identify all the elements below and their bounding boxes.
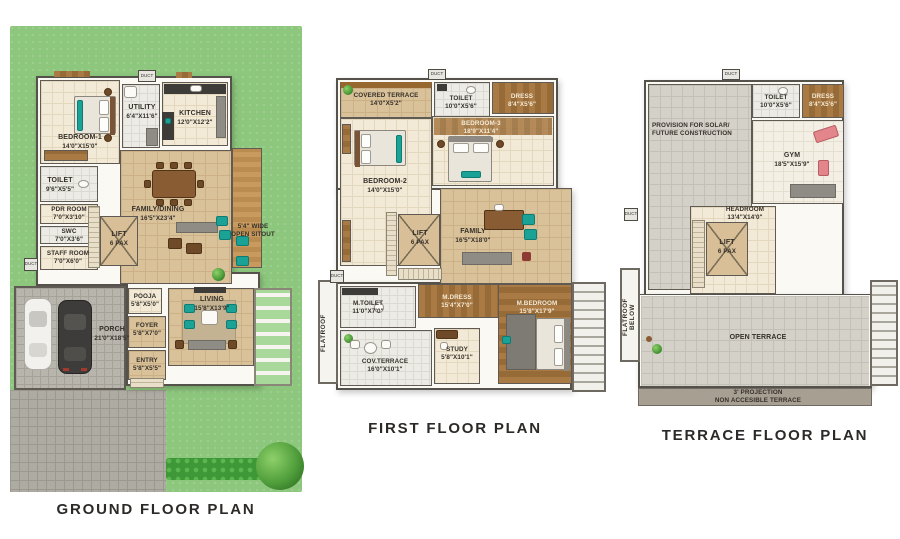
pergola-trellis xyxy=(254,288,292,386)
accent-chair xyxy=(226,320,237,329)
vanity-icon xyxy=(342,288,378,295)
toilet-wc-icon xyxy=(466,86,476,94)
bed-headboard xyxy=(449,137,493,142)
driveway xyxy=(10,390,166,492)
open-sitout-deck xyxy=(232,148,262,268)
accent-chair xyxy=(524,229,537,240)
chair-white xyxy=(494,204,504,211)
balcony-first xyxy=(572,282,606,392)
accent-chair xyxy=(216,216,228,226)
washer-icon xyxy=(124,86,137,98)
dining-chair xyxy=(170,162,178,169)
vanity-icon xyxy=(437,84,447,91)
label-toilet-first: TOILET10'0"X5'6" xyxy=(438,95,484,110)
terrace-chair xyxy=(381,340,391,349)
label-kitchen: KITCHEN12'0"X12'2" xyxy=(170,110,220,127)
pillow-icon xyxy=(361,134,371,148)
plant-icon xyxy=(212,268,225,281)
label-gym: GYM18'5"X15'9" xyxy=(764,152,820,169)
dining-chair xyxy=(170,199,178,206)
study-desk xyxy=(436,330,458,339)
coffee-table xyxy=(186,243,202,254)
label-pooja: POOJA5'8"X5'0" xyxy=(126,293,164,308)
bed-runner xyxy=(461,171,481,178)
bed-headboard xyxy=(355,131,360,167)
dining-chair xyxy=(184,162,192,169)
sofa-icon xyxy=(176,222,218,233)
duct-box: DUCT xyxy=(722,69,740,80)
label-staff: STAFF ROOM7'0"X6'0" xyxy=(40,250,96,265)
duct-box: DUCT xyxy=(138,70,156,82)
label-toilet-terrace: TOILET10'0"X5'6" xyxy=(754,94,798,109)
wardrobe-icon xyxy=(44,150,88,161)
car-rear-window xyxy=(64,347,86,361)
door-mat xyxy=(176,72,192,78)
label-headroom: HEADROOM13'4"X14'0" xyxy=(716,206,774,221)
duct-box: DUCT xyxy=(330,270,344,283)
coffee-table xyxy=(168,238,182,249)
ottoman-red xyxy=(522,252,531,261)
dining-chair xyxy=(197,180,204,188)
tree-icon xyxy=(256,442,304,490)
entry-steps xyxy=(130,378,164,388)
accent-stool xyxy=(502,336,511,344)
bed-icon xyxy=(74,96,116,134)
label-pdr: PDR ROOM7'0"X3'10" xyxy=(42,206,96,221)
side-table-icon xyxy=(437,140,445,148)
sofa-icon xyxy=(188,340,226,350)
terrace-table xyxy=(364,342,377,354)
label-flatroof-below: FLATROOF BELOW xyxy=(622,288,638,346)
label-porch: PORCH21'0"X18'5" xyxy=(90,326,134,343)
bed-icon xyxy=(536,318,570,370)
sink-icon xyxy=(190,85,202,92)
pillow-icon xyxy=(99,117,109,132)
label-bedroom3: BEDROOM-318'9"X11'4" xyxy=(450,120,512,135)
label-open-sitout: 5'4" WIDEOPEN SITOUT xyxy=(228,223,278,238)
car-rear-window xyxy=(29,343,47,357)
label-entry: ENTRY5'8"X5'5" xyxy=(130,357,164,372)
label-projection: 3' PROJECTIONNON ACCESIBLE TERRACE xyxy=(688,389,828,405)
dining-chair xyxy=(156,162,164,169)
label-open-terrace: OPEN TERRACE xyxy=(716,334,800,343)
utility-counter xyxy=(146,128,158,146)
media-unit xyxy=(462,252,512,265)
door-mat xyxy=(54,71,90,77)
toilet-wc-icon xyxy=(78,180,89,188)
side-table-icon xyxy=(104,88,112,96)
label-familydining: FAMILY/DINING16'5"X23'4" xyxy=(126,206,190,223)
pillow-icon xyxy=(473,143,489,153)
bed-headboard xyxy=(110,97,115,135)
pot-icon xyxy=(646,336,652,342)
label-dress-terrace: DRESS8'4"X5'6" xyxy=(802,93,844,108)
car-dark-icon xyxy=(58,300,92,374)
dining-table-icon xyxy=(152,170,196,198)
dining-chair xyxy=(184,199,192,206)
tail-light xyxy=(81,368,87,371)
accent-chair xyxy=(184,320,195,329)
accent-chair xyxy=(522,214,535,225)
duct-label: DUCT xyxy=(431,72,444,77)
gym-bench-icon xyxy=(790,184,836,198)
pillow-icon xyxy=(554,325,563,343)
stairs-first xyxy=(386,212,397,276)
label-mdress: M.DRESS15'4"X7'0" xyxy=(428,294,486,309)
label-bedroom1: BEDROOM-114'0"X15'0" xyxy=(48,134,112,151)
label-covered-terrace: COVERED TERRACE14'0"X5'2" xyxy=(346,92,426,107)
label-solar-provision: PROVISION FOR SOLAR/FUTURE CONSTRUCTION xyxy=(648,122,756,137)
label-covterrace: COV.TERRACE16'0"X10'1" xyxy=(352,358,418,373)
pillow-icon xyxy=(99,100,109,115)
bed-runner xyxy=(77,100,83,131)
ground-floor-title: GROUND FLOOR PLAN xyxy=(10,501,302,518)
tv-console xyxy=(194,287,226,293)
terrace-floor-title: TERRACE FLOOR PLAN xyxy=(640,427,890,444)
duct-box: DUCT xyxy=(428,69,446,80)
duct-box: DUCT xyxy=(624,208,638,221)
stairs-terrace xyxy=(692,220,705,288)
label-living: LIVING15'8"X13'9" xyxy=(190,296,234,313)
label-flatroof: FLATROOF xyxy=(320,308,336,358)
label-mtoilet: M.TOILET11'0"X7'0" xyxy=(344,300,392,315)
label-bedroom2: BEDROOM-214'0"X15'0" xyxy=(352,178,418,195)
sitout-chair xyxy=(236,256,249,266)
family-table xyxy=(484,210,524,230)
label-utility: UTILITY6'4"X11'6" xyxy=(123,104,161,121)
label-foyer: FOYER5'8"X7'0" xyxy=(130,322,164,337)
label-mbedroom: M.BEDROOM15'8"X17'9" xyxy=(502,300,572,315)
duct-label: DUCT xyxy=(625,212,638,217)
side-table-icon xyxy=(496,140,504,148)
bed-runner xyxy=(396,135,402,163)
terrace-chair xyxy=(350,340,360,349)
bed-headboard xyxy=(564,319,569,371)
side-table-icon xyxy=(175,340,184,349)
label-toilet-ground: TOILET9'6"X5'5" xyxy=(42,177,78,194)
tail-light xyxy=(63,368,69,371)
car-windshield xyxy=(64,314,86,330)
pillow-icon xyxy=(361,150,371,164)
wardrobe-icon xyxy=(342,124,351,154)
label-lift-terrace: LIFT6 PAX xyxy=(712,239,742,256)
pillow-icon xyxy=(554,348,563,366)
duct-box: DUCT xyxy=(24,258,38,271)
dining-chair xyxy=(144,180,151,188)
label-family: FAMILY16'5"X18'0" xyxy=(446,228,500,245)
duct-label: DUCT xyxy=(25,262,38,267)
label-swc: SWC7'0"X3'6" xyxy=(42,228,96,243)
floor-plans-sheet: DUCT DUCT BEDROOM-114'0"X15'0" UTILITY6'… xyxy=(0,0,900,539)
duct-label: DUCT xyxy=(141,74,154,79)
car-windshield xyxy=(29,311,47,327)
first-floor-title: FIRST FLOOR PLAN xyxy=(330,420,580,437)
label-study: STUDY5'8"X10'1" xyxy=(438,346,476,361)
bed-icon xyxy=(354,130,406,166)
duct-label: DUCT xyxy=(331,274,344,279)
balcony-terrace xyxy=(870,280,898,386)
duct-label: DUCT xyxy=(725,72,738,77)
bed-icon xyxy=(448,136,492,182)
wardrobe-icon xyxy=(342,220,351,262)
pillow-icon xyxy=(453,143,469,153)
dining-chair xyxy=(156,199,164,206)
label-dress-first: DRESS8'4"X5'6" xyxy=(498,93,546,108)
plant-icon xyxy=(652,344,662,354)
label-lift-first: LIFT6 PAX xyxy=(406,230,434,247)
stairs-first-lower xyxy=(398,268,442,280)
side-table-icon xyxy=(228,340,237,349)
label-lift-ground: LIFT6 PAX xyxy=(104,231,134,248)
car-white-icon xyxy=(24,298,52,370)
